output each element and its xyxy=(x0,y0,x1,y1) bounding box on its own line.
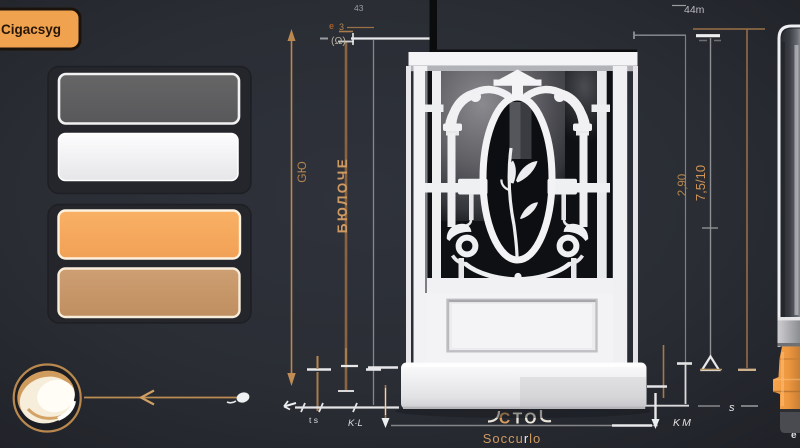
svg-text:3: 3 xyxy=(339,22,344,32)
svg-text:K·L: K·L xyxy=(348,418,363,429)
svg-text:K M: K M xyxy=(673,417,691,429)
svg-text:43: 43 xyxy=(354,3,364,13)
svg-text:44m: 44m xyxy=(684,4,705,16)
svg-text:e: e xyxy=(329,21,334,31)
svg-text:2,90: 2,90 xyxy=(677,174,689,196)
svg-text:Cigacsyg: Cigacsyg xyxy=(1,22,61,37)
svg-text:GЮ: GЮ xyxy=(295,161,309,182)
svg-text:Soccurlo: Soccurlo xyxy=(483,431,542,446)
svg-text:(Ω): (Ω) xyxy=(331,35,346,47)
svg-text:БЮЛОЧЕ: БЮЛОЧЕ xyxy=(335,157,350,234)
svg-text:s: s xyxy=(729,402,735,414)
svg-text:7,5/10: 7,5/10 xyxy=(693,165,708,201)
svg-text:t s: t s xyxy=(309,415,318,425)
